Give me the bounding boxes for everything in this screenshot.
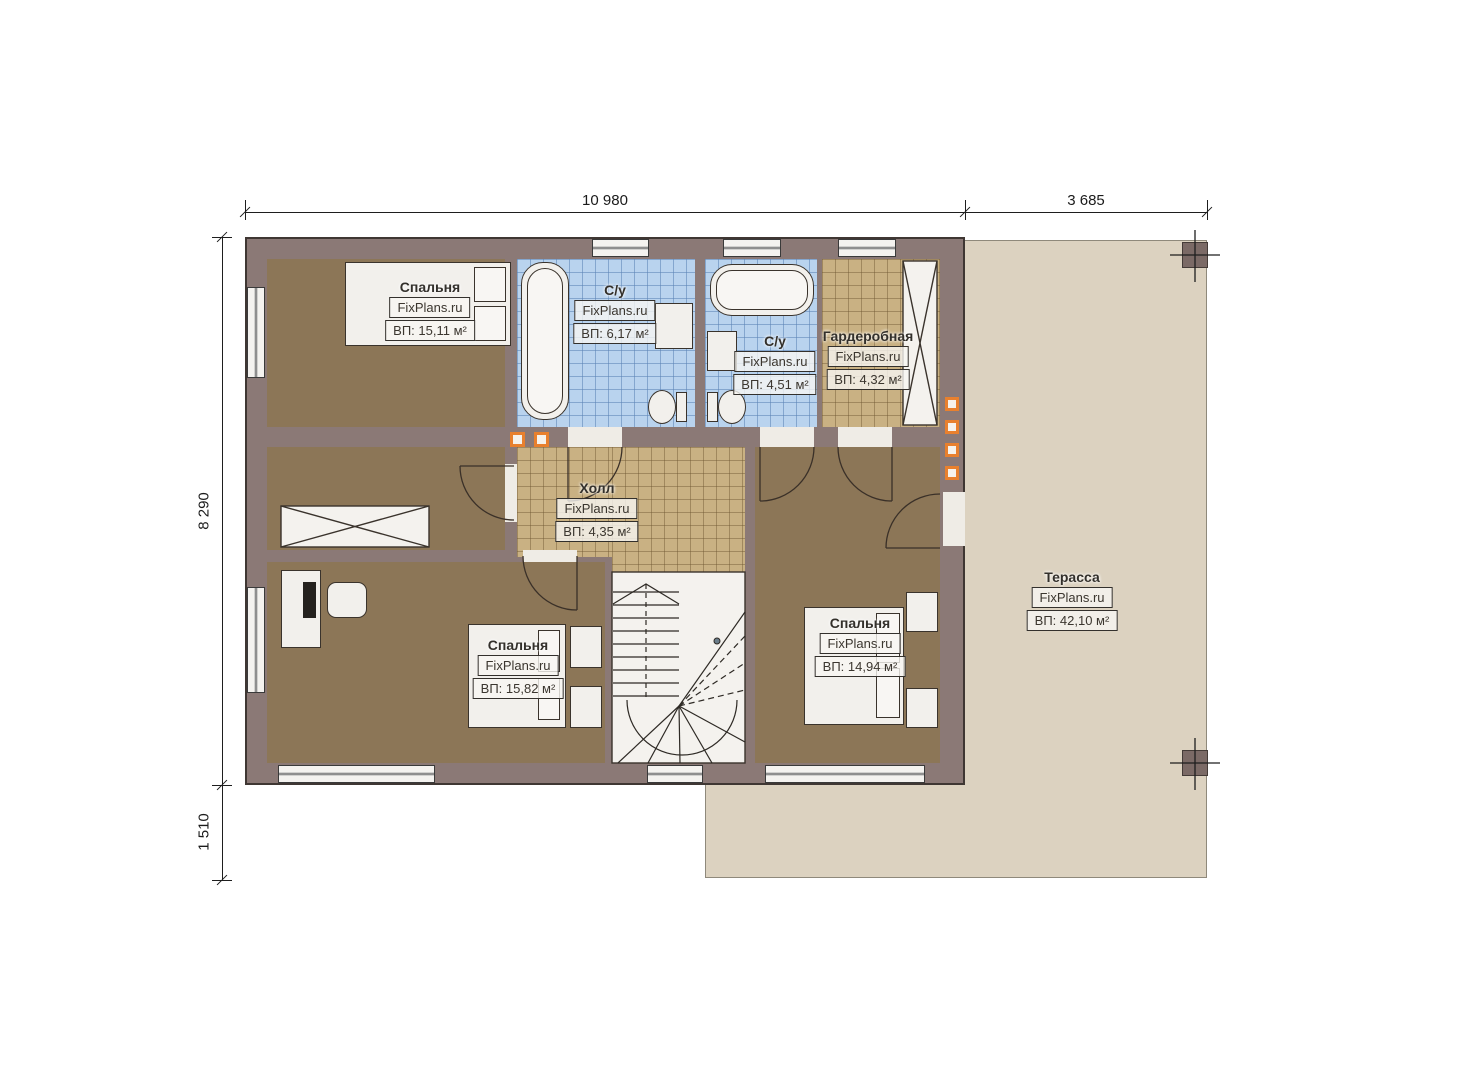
- toilet: [648, 390, 676, 424]
- watermark-fixplans: FixPlans.ru: [1031, 587, 1112, 608]
- door-opening-terrace: [943, 492, 965, 546]
- window-bottom-2: [647, 765, 703, 783]
- stairwell-floor: [612, 572, 745, 763]
- column-mark: [945, 397, 959, 411]
- dimension-value-terrace-width: 3 685: [1067, 192, 1105, 209]
- chair: [327, 582, 367, 618]
- terrace-pillar-top: [1182, 242, 1208, 268]
- nightstand: [570, 686, 602, 728]
- watermark-fixplans: FixPlans.ru: [574, 300, 655, 321]
- column-mark: [945, 443, 959, 457]
- terrace-area-lower: [705, 785, 967, 878]
- nightstand: [906, 592, 938, 632]
- room-label-bedroom-bottom-right: Спальня FixPlans.ru ВП: 14,94 м²: [815, 615, 906, 677]
- room-area-value: ВП: 15,82 м²: [473, 678, 564, 699]
- window-top-3: [838, 239, 896, 257]
- dimension-value-house-height: 8 290: [196, 492, 213, 530]
- door-opening-bathroom-main: [568, 427, 622, 447]
- room-area-value: ВП: 4,35 м²: [555, 521, 638, 542]
- terrace-pillar-bottom: [1182, 750, 1208, 776]
- room-label-bedroom-bottom-left: Спальня FixPlans.ru ВП: 15,82 м²: [473, 637, 564, 699]
- pillow: [474, 306, 506, 341]
- room-name: Спальня: [400, 279, 460, 295]
- terrace-area: [965, 240, 1207, 878]
- column-mark: [945, 466, 959, 480]
- room-name: С/у: [604, 282, 626, 298]
- column-mark: [510, 432, 525, 447]
- room-name: Терасса: [1044, 569, 1100, 585]
- window-top-1: [592, 239, 649, 257]
- room-area-value: ВП: 4,51 м²: [733, 374, 816, 395]
- nightstand: [570, 626, 602, 668]
- room-label-wardrobe: Гардеробная FixPlans.ru ВП: 4,32 м²: [823, 328, 914, 390]
- room-label-hall: Холл FixPlans.ru ВП: 4,35 м²: [555, 480, 638, 542]
- watermark-fixplans: FixPlans.ru: [734, 351, 815, 372]
- room-label-bedroom-top-left: Спальня FixPlans.ru ВП: 15,11 м²: [385, 279, 475, 341]
- door-opening-bedroom-right-1: [760, 427, 814, 447]
- room-area-value: ВП: 4,32 м²: [826, 369, 909, 390]
- bathtub-inner: [716, 270, 808, 310]
- room-name: С/у: [764, 333, 786, 349]
- computer-monitor: [303, 582, 316, 618]
- window-left-1: [247, 287, 265, 378]
- washing-machine: [655, 303, 693, 349]
- column-mark: [534, 432, 549, 447]
- room-area-value: ВП: 14,94 м²: [815, 656, 906, 677]
- column-mark: [945, 420, 959, 434]
- watermark-fixplans: FixPlans.ru: [389, 297, 470, 318]
- window-top-2: [723, 239, 781, 257]
- watermark-fixplans: FixPlans.ru: [477, 655, 558, 676]
- room-label-terrace: Терасса FixPlans.ru ВП: 42,10 м²: [1027, 569, 1118, 631]
- watermark-fixplans: FixPlans.ru: [819, 633, 900, 654]
- nightstand: [906, 688, 938, 728]
- toilet-tank: [707, 392, 718, 422]
- room-name: Гардеробная: [823, 328, 914, 344]
- watermark-fixplans: FixPlans.ru: [556, 498, 637, 519]
- room-middle-left-floor: [267, 447, 505, 550]
- pillow: [474, 267, 506, 302]
- dimension-value-terrace-height: 1 510: [196, 813, 213, 851]
- room-label-bathroom-main: С/у FixPlans.ru ВП: 6,17 м²: [573, 282, 656, 344]
- door-opening-hall-left: [505, 464, 517, 522]
- room-label-bathroom-second: С/у FixPlans.ru ВП: 4,51 м²: [733, 333, 816, 395]
- room-name: Спальня: [488, 637, 548, 653]
- room-name: Холл: [579, 480, 614, 496]
- room-name: Спальня: [830, 615, 890, 631]
- watermark-fixplans: FixPlans.ru: [827, 346, 908, 367]
- room-area-value: ВП: 6,17 м²: [573, 323, 656, 344]
- toilet-tank: [676, 392, 687, 422]
- dimension-line-top: [245, 212, 1207, 213]
- window-bottom-1: [278, 765, 435, 783]
- window-bottom-3: [765, 765, 925, 783]
- window-left-2: [247, 587, 265, 693]
- door-opening-bedroom-left: [523, 550, 577, 562]
- toilet: [718, 390, 746, 424]
- bathtub-inner: [527, 268, 563, 414]
- floor-plan-canvas: Спальня FixPlans.ru ВП: 15,11 м² С/у Fix…: [0, 0, 1473, 1080]
- room-area-value: ВП: 15,11 м²: [385, 320, 475, 341]
- dimension-value-house-width: 10 980: [582, 192, 628, 209]
- room-area-value: ВП: 42,10 м²: [1027, 610, 1118, 631]
- door-opening-bedroom-right-2: [838, 427, 892, 447]
